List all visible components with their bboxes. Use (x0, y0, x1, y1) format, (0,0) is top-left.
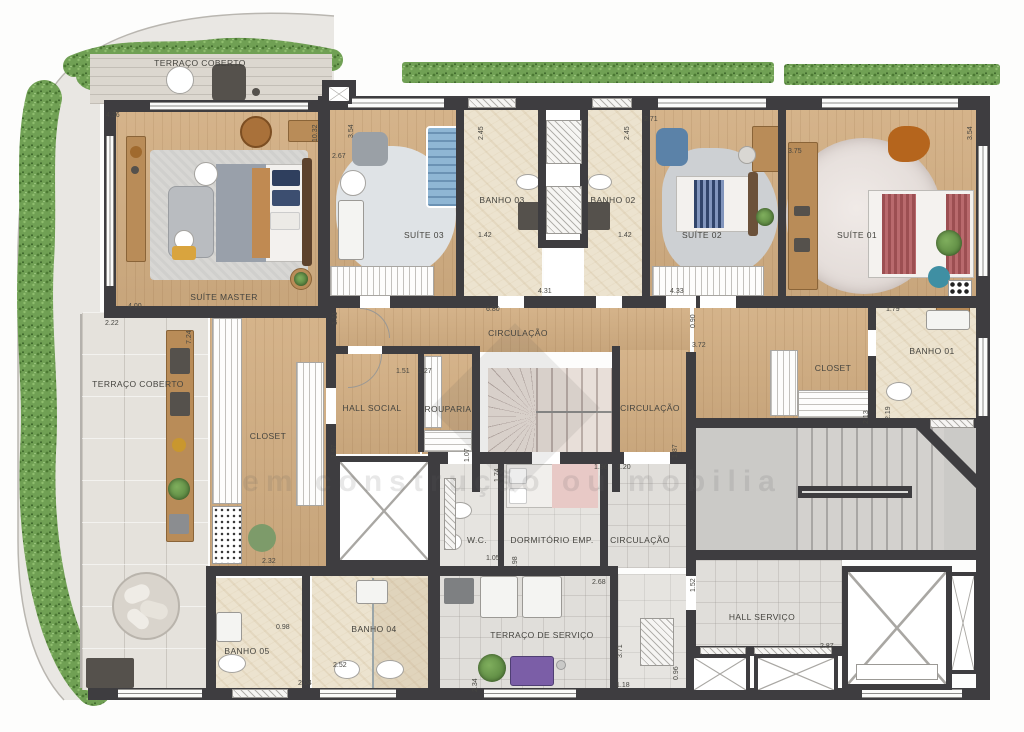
dimension-label: 3.54 (967, 126, 974, 140)
window (978, 338, 988, 416)
dimension-label: 3.71 (617, 644, 624, 658)
vanity (216, 612, 242, 642)
dimension-label: 0.96 (673, 666, 680, 680)
terrace-table (166, 66, 194, 94)
grill (212, 64, 246, 102)
washer (480, 576, 518, 618)
terrace-railing (80, 314, 82, 688)
wall (206, 566, 216, 700)
utility-shaft (326, 84, 352, 104)
wall (610, 566, 618, 700)
room-label-closet-master: CLOSET (250, 431, 286, 441)
vent (930, 419, 974, 428)
sink (588, 174, 612, 190)
sink (516, 174, 540, 190)
pillow (270, 212, 300, 230)
dimension-label: 1.97 (331, 444, 338, 458)
pouf-green (248, 524, 276, 552)
window (484, 689, 576, 698)
decor-dot (252, 88, 260, 96)
decor-dot (131, 166, 139, 174)
dimension-label: 1.52 (690, 578, 697, 592)
pillow (272, 170, 300, 186)
plant (756, 208, 774, 226)
dimension-label: 2.19 (885, 406, 892, 420)
dimension-label: 1.27 (418, 368, 432, 375)
rattan-chair (240, 116, 272, 148)
wall (868, 308, 876, 420)
decor-bowl (172, 438, 186, 452)
dryer (522, 576, 562, 618)
dimension-label: 1.05 (486, 555, 500, 562)
door-opening (498, 296, 524, 308)
room-label-suite-03: SUÍTE 03 (404, 230, 444, 240)
handrail-line (802, 491, 908, 493)
watermark-text: em construção ou mobilia (242, 465, 782, 499)
wardrobe (212, 318, 242, 504)
dimension-label: 2.67 (332, 153, 346, 160)
wardrobe (330, 266, 434, 296)
dimension-label: 1.42 (478, 232, 492, 239)
dimension-label: 1.51 (396, 368, 410, 375)
room-label-banho-03: BANHO 03 (479, 195, 524, 205)
ironing-board (510, 656, 554, 686)
window (106, 136, 114, 286)
dimension-label: 2.45 (478, 126, 485, 140)
wall (778, 108, 786, 304)
room-label-dormitorio: DORMITÓRIO EMP. (510, 535, 593, 545)
window (978, 146, 988, 276)
dimension-label: 2.45 (624, 126, 631, 140)
bed-stripes (882, 194, 916, 274)
window (862, 689, 962, 698)
dimension-label: 2.71 (644, 116, 658, 123)
wall (538, 108, 546, 248)
door-opening (360, 296, 390, 308)
wall (456, 108, 464, 304)
bed-throw (252, 168, 270, 258)
window (150, 102, 308, 110)
window (822, 98, 958, 108)
duct (546, 186, 582, 234)
door-opening (596, 296, 622, 308)
utility-shaft (948, 572, 978, 674)
stair-corner (944, 426, 978, 550)
dimension-label: 1.07 (464, 448, 471, 462)
dimension-label: 3.75 (788, 148, 802, 155)
planter-box (86, 658, 134, 688)
hall-servico-floor (694, 560, 842, 650)
dimension-label: 1.18 (616, 682, 630, 689)
dimension-label: 2.22 (105, 320, 119, 327)
desk-item (794, 238, 810, 252)
dimension-label: 2.52 (333, 662, 347, 669)
room-label-terraco-left: TERRAÇO COBERTO (92, 379, 184, 389)
door-opening (348, 346, 382, 354)
room-label-suite-02: SUÍTE 02 (682, 230, 722, 240)
dimension-label: 4.31 (538, 288, 552, 295)
basket (130, 146, 142, 158)
armchair (352, 132, 388, 166)
room-label-banho-04: BANHO 04 (351, 624, 396, 634)
wardrobe (798, 390, 872, 418)
window (348, 98, 444, 108)
room-label-suite-master: SUÍTE MASTER (190, 292, 258, 302)
dimension-label: 0.90 (690, 314, 697, 328)
dimension-label: 2.87 (820, 643, 834, 650)
dimension-label: 3.54 (348, 124, 355, 138)
room-label-banho-05: BANHO 05 (224, 646, 269, 656)
dimension-label: 10.32 (312, 124, 319, 142)
wall (642, 108, 650, 304)
toilet (218, 654, 246, 673)
throw-blanket (172, 246, 196, 260)
bed-stripes (694, 180, 724, 228)
side-table (194, 162, 218, 186)
door-opening (624, 452, 670, 464)
dimension-label: 2.13 (863, 410, 870, 424)
plant (294, 272, 308, 286)
room-label-banho-02: BANHO 02 (590, 195, 635, 205)
toilet (376, 660, 404, 679)
vent (232, 689, 288, 698)
window (658, 98, 766, 108)
dimension-label: 0.98 (276, 624, 290, 631)
door-opening (700, 296, 736, 308)
headboard (302, 158, 312, 266)
room-label-closet-01: CLOSET (815, 363, 851, 373)
wall (686, 550, 978, 560)
wall (428, 566, 618, 576)
wall (538, 240, 588, 248)
vent (468, 98, 516, 108)
dimension-label: 4.33 (670, 288, 684, 295)
door-opening (868, 330, 876, 356)
door-opening (666, 296, 696, 308)
pouf-teal (928, 266, 950, 288)
duct (640, 618, 674, 666)
dimension-label: 1.11 (332, 312, 339, 325)
dimension-label: 2.68 (592, 579, 606, 586)
plant (168, 478, 190, 500)
dimension-label: 6.80 (486, 306, 500, 313)
sink-counter (356, 580, 388, 604)
daybed (426, 126, 460, 208)
window (118, 689, 202, 698)
wardrobe (770, 350, 798, 416)
desk (752, 126, 780, 172)
dimension-label: 2.32 (262, 558, 276, 565)
plant (478, 654, 506, 682)
stool (169, 514, 189, 534)
duct (546, 120, 582, 164)
headboard (748, 172, 758, 236)
dimension-label: 1.79 (886, 306, 900, 313)
round-table (340, 170, 366, 196)
plant (936, 230, 962, 256)
pillow (272, 190, 300, 206)
armchair (656, 128, 688, 166)
room-label-circulacao-2: CIRCULAÇÃO (620, 403, 680, 413)
dimension-label: 1.42 (618, 232, 632, 239)
dimension-label: 1.87 (672, 444, 679, 458)
toilet (886, 382, 912, 401)
dimension-label: 3.72 (692, 342, 706, 349)
room-label-wc: W.C. (467, 535, 487, 545)
room-label-circulacao-3: CIRCULAÇÃO (610, 535, 670, 545)
desk-chair (738, 146, 756, 164)
dimension-label: 2.34 (472, 678, 479, 692)
laptop (794, 206, 810, 216)
utility-shaft (754, 654, 838, 694)
cooktop (170, 392, 190, 416)
door-opening (326, 388, 336, 424)
floor-plan: TERRAÇO COBERTO SUÍTE MASTER SUÍTE 03 BA… (0, 0, 1024, 732)
dimension-label: 2.04 (298, 680, 312, 687)
room-label-hall-social: HALL SOCIAL (343, 403, 402, 413)
hedge-top-right (784, 64, 1000, 85)
utility-shaft (690, 654, 750, 694)
room-label-banho-01: BANHO 01 (909, 346, 954, 356)
vanity (586, 202, 610, 230)
wall (318, 96, 330, 318)
room-label-hall-servico: HALL SERVIÇO (729, 612, 795, 622)
shoe-rack (212, 506, 242, 564)
elevator-sill (856, 664, 938, 680)
room-label-terraco-servico: TERRAÇO DE SERVIÇO (490, 630, 593, 640)
dimension-label: 4.36 (106, 112, 120, 119)
room-label-suite-01: SUÍTE 01 (837, 230, 877, 240)
laundry-sink (444, 578, 474, 604)
wall (206, 566, 438, 576)
window (320, 689, 396, 698)
dimension-label: 4.00 (128, 303, 142, 310)
hedge-top-center (402, 62, 774, 83)
dimension-label: 1.98 (512, 556, 519, 570)
dresser (338, 200, 364, 260)
desk-counter (788, 142, 818, 290)
room-label-terraco-top: TERRAÇO COBERTO (154, 58, 246, 68)
dimension-label: 7.24 (186, 330, 193, 344)
outdoor-sink (170, 348, 190, 374)
bucket (556, 660, 566, 670)
sink-counter (926, 310, 970, 330)
wardrobe (652, 266, 764, 296)
vent (592, 98, 632, 108)
